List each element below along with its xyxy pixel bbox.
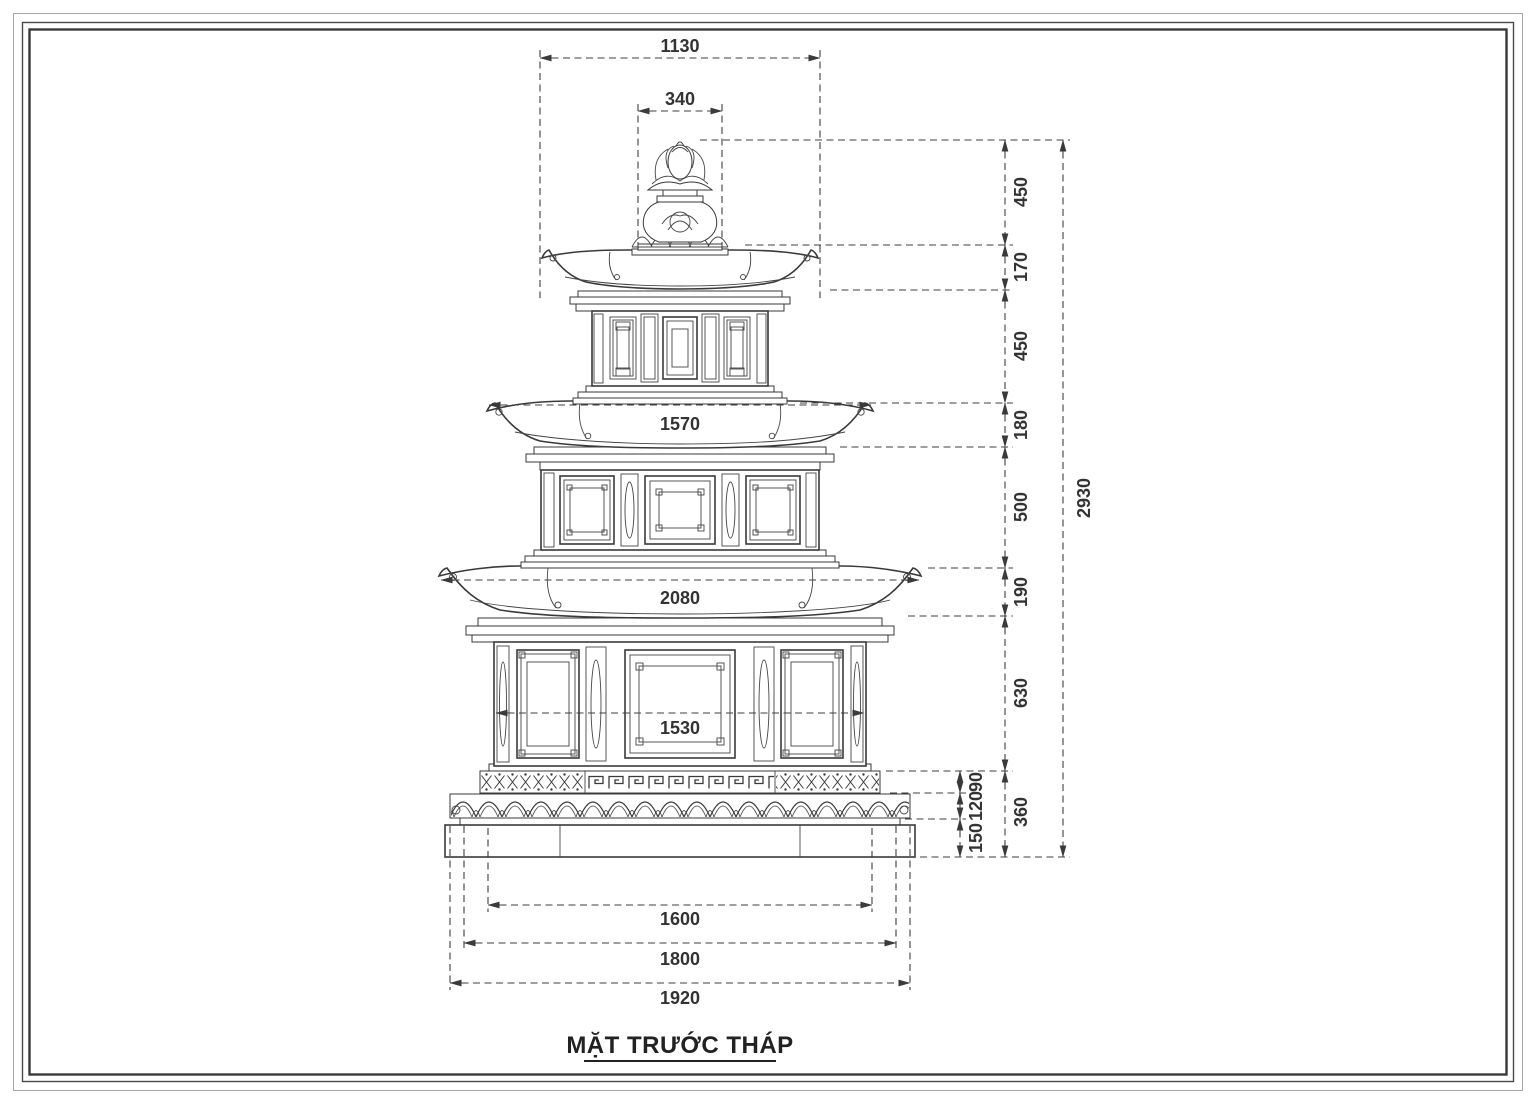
dim-top-roof-height: 170 <box>1011 252 1031 282</box>
blueprint-page: 1130 340 1570 2080 1530 1600 1800 1920 4… <box>0 0 1536 1104</box>
dim-total-height: 2930 <box>1074 478 1094 518</box>
base-slab <box>445 825 915 857</box>
dim-middle-roof-height: 180 <box>1011 410 1031 440</box>
dim-base-molding-height: 120 <box>966 791 986 821</box>
dim-middle-roof-width: 1570 <box>660 414 700 434</box>
base-lotus-band <box>451 795 909 817</box>
pagoda-base <box>445 764 915 857</box>
drawing-title: MẶT TRƯỚC THÁP <box>566 1031 793 1061</box>
base-x-band-left <box>481 772 584 792</box>
dim-lower-roof-width: 2080 <box>660 588 700 608</box>
dim-lower-body-height: 630 <box>1011 678 1031 708</box>
dim-base-total-height: 360 <box>1011 797 1031 827</box>
dim-base-middle-width: 1800 <box>660 949 700 969</box>
top-roof <box>542 250 818 289</box>
dim-top-body-height: 450 <box>1011 331 1031 361</box>
dim-lower-roof-height: 190 <box>1011 577 1031 607</box>
dim-base-upper-width: 1600 <box>660 909 700 929</box>
top-tier-body <box>570 291 790 404</box>
dim-middle-body-height: 500 <box>1011 492 1031 522</box>
dim-top-roof-width: 1130 <box>660 36 699 56</box>
pagoda-elevation <box>439 142 921 857</box>
dim-base-bottom-width: 1920 <box>660 988 700 1008</box>
base-x-band-right <box>776 772 879 792</box>
lotus-finial <box>632 142 728 255</box>
lower-tier-body <box>466 618 894 766</box>
base-meander-band <box>586 772 774 792</box>
dim-base-plinth-height: 150 <box>966 823 986 853</box>
dim-finial-width: 340 <box>665 89 695 109</box>
title-text: MẶT TRƯỚC THÁP <box>566 1031 793 1059</box>
blueprint-canvas: 1130 340 1570 2080 1530 1600 1800 1920 4… <box>0 0 1536 1104</box>
dim-base-band-height: 90 <box>966 772 986 792</box>
dim-lower-body-width: 1530 <box>660 718 700 738</box>
middle-tier-body <box>521 447 839 568</box>
dim-finial-height: 450 <box>1011 177 1031 207</box>
